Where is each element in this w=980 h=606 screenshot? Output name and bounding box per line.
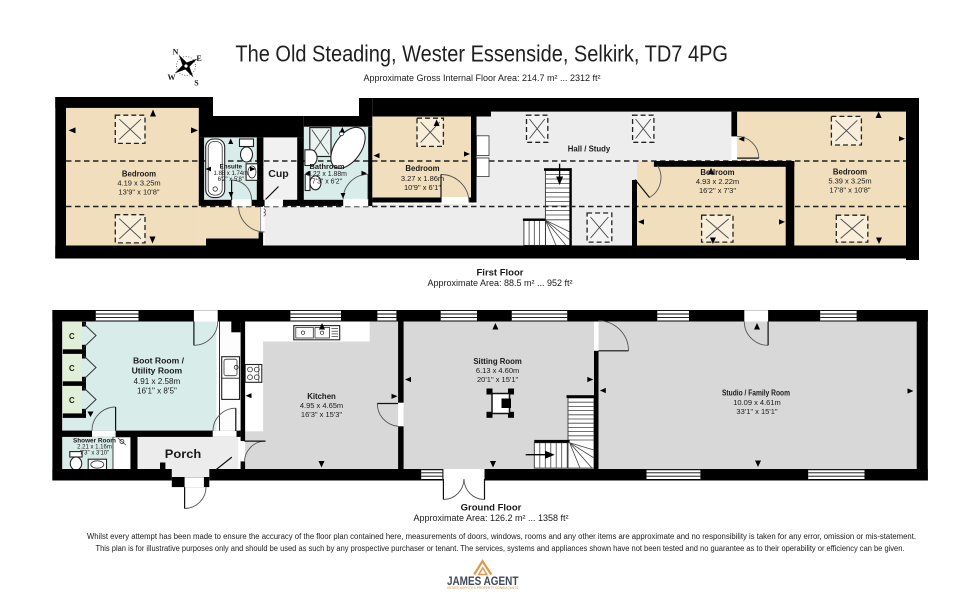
svg-text:10.09 x 4.61m: 10.09 x 4.61m [733,398,781,407]
svg-text:33'1" x 15'1": 33'1" x 15'1" [736,407,777,416]
svg-text:6.13 x 4.60m: 6.13 x 4.60m [476,366,519,375]
svg-text:4.91 x 2.58m: 4.91 x 2.58m [134,377,181,386]
svg-text:First Floor: First Floor [477,268,524,279]
svg-text:Studio / Family Room: Studio / Family Room [722,389,790,398]
svg-text:3.27 x 1.86m: 3.27 x 1.86m [401,174,444,183]
svg-text:Sitting Room: Sitting Room [473,357,522,366]
svg-text:20'1" x 15'1": 20'1" x 15'1" [477,375,518,384]
svg-text:W: W [168,73,176,82]
svg-text:Porch: Porch [165,447,202,461]
svg-text:Whilst every attempt has been: Whilst every attempt has been made to en… [87,532,916,541]
svg-text:17'8" x 10'8": 17'8" x 10'8" [829,186,870,195]
svg-text:16'1" x 8'5": 16'1" x 8'5" [137,387,177,396]
svg-text:7'3" x 6'2": 7'3" x 6'2" [312,179,343,186]
svg-text:Ensuite: Ensuite [220,164,243,171]
svg-text:5.39 x 3.25m: 5.39 x 3.25m [828,177,871,186]
svg-text:E: E [196,54,201,63]
svg-text:16'2" x 7'3": 16'2" x 7'3" [699,186,736,195]
svg-text:Kitchen: Kitchen [307,392,336,401]
svg-text:4.95 x 4.65m: 4.95 x 4.65m [300,401,343,410]
svg-text:N: N [173,48,179,57]
svg-text:Ground Floor: Ground Floor [461,503,522,514]
svg-text:Bedroom: Bedroom [122,170,156,179]
svg-text:Hall / Study: Hall / Study [568,145,611,154]
svg-text:16'3" x 15'3": 16'3" x 15'3" [301,410,342,419]
svg-text:C: C [69,364,75,373]
svg-text:Approximate Area: 126.2 m² ...: Approximate Area: 126.2 m² ... 1358 ft² [413,513,568,523]
svg-text:6'2" x 5'8": 6'2" x 5'8" [218,177,244,183]
svg-text:2.22 x 1.88m: 2.22 x 1.88m [307,171,347,178]
svg-text:This plan is for illustrative: This plan is for illustrative purposes o… [96,544,905,553]
svg-text:Approximate Gross Internal Flo: Approximate Gross Internal Floor Area: 2… [363,73,600,83]
svg-text:Boot Room /: Boot Room / [133,356,185,366]
svg-text:ESTATE AGENTS & PROPERTY CONSU: ESTATE AGENTS & PROPERTY CONSULTANTS [447,586,519,590]
svg-text:C: C [69,396,75,405]
svg-text:Shower Room: Shower Room [73,437,116,444]
svg-text:Bathroom: Bathroom [310,162,345,171]
svg-text:4.19 x 3.25m: 4.19 x 3.25m [117,179,160,188]
svg-text:7'3" x 3'10": 7'3" x 3'10" [80,450,110,456]
svg-text:13'9" x 10'8": 13'9" x 10'8" [118,188,159,197]
svg-text:S: S [194,79,199,88]
svg-text:Approximate Area: 88.5 m² ...: Approximate Area: 88.5 m² ... 952 ft² [427,278,572,288]
svg-text:The Old Steading, Wester Essen: The Old Steading, Wester Essenside, Selk… [235,41,728,67]
svg-text:4.93 x 2.22m: 4.93 x 2.22m [696,177,739,186]
svg-text:Cup: Cup [268,168,288,180]
svg-text:10'9" x 6'1": 10'9" x 6'1" [404,183,441,192]
svg-text:Bedroom: Bedroom [833,168,867,177]
svg-text:Utility Room: Utility Room [132,366,183,376]
svg-text:C: C [69,332,75,341]
svg-text:Bedroom: Bedroom [405,164,439,173]
svg-text:Bedroom: Bedroom [700,168,734,177]
